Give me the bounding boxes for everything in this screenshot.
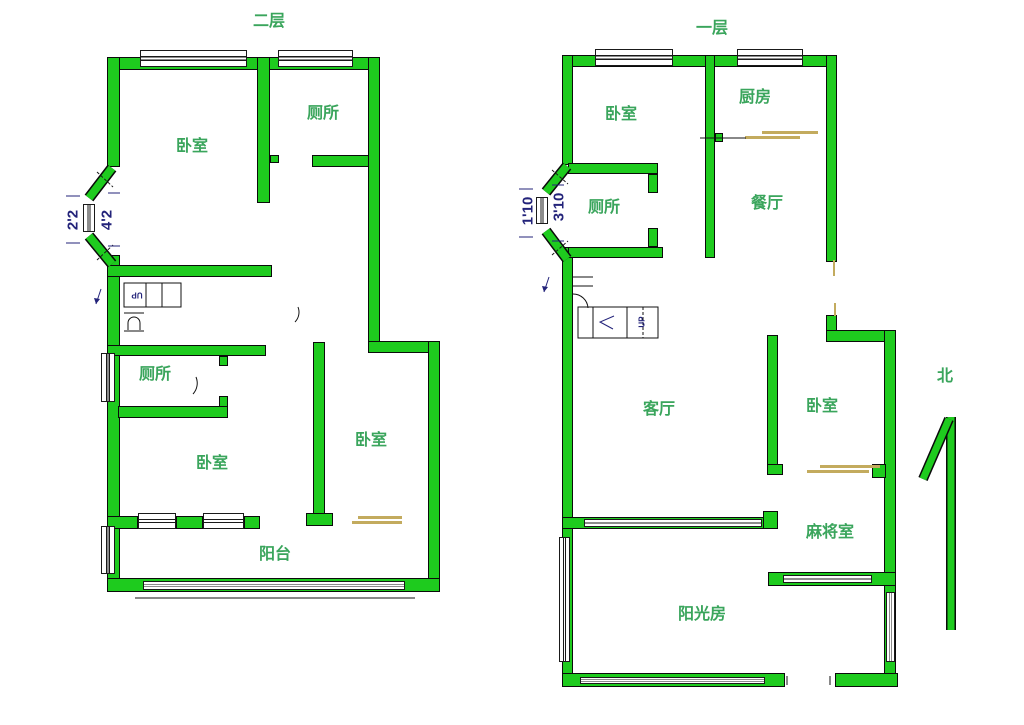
- room-label-bedroom-top-right: 卧室: [605, 100, 637, 124]
- plan-title-second-floor: 二层: [253, 7, 285, 31]
- room-label-kitchen: 厨房: [739, 83, 771, 107]
- dimension-label: 4'2: [99, 210, 116, 230]
- plan-title-first-floor: 一层: [696, 14, 728, 38]
- room-label-sunroom: 阳光房: [678, 600, 726, 624]
- room-label-dining: 餐厅: [751, 189, 783, 213]
- door-swing: [193, 377, 197, 394]
- stairs-up-label-right: UP: [638, 316, 647, 327]
- dimension-label: 3'10: [551, 193, 568, 222]
- dimension-ticks: [66, 185, 564, 246]
- room-label-mahjong: 麻将室: [806, 518, 854, 542]
- room-label-bedroom-mid-left: 卧室: [196, 449, 228, 473]
- door-swing: [295, 307, 299, 322]
- stairs-right: [542, 277, 658, 338]
- room-label-bedroom-right-right: 卧室: [806, 392, 838, 416]
- sunroom-door-gap-ticks: [787, 676, 830, 685]
- compass-north-label: 北: [937, 362, 953, 386]
- room-label-toilet-right: 厕所: [588, 193, 620, 217]
- stairs-up-label-left: UP: [131, 291, 142, 300]
- room-label-bedroom-top-left: 卧室: [176, 132, 208, 156]
- dimension-label: 1'10: [520, 197, 537, 226]
- room-label-living: 客厅: [643, 395, 675, 419]
- north-arrow: [923, 417, 951, 630]
- room-label-toilet-top-left: 厕所: [307, 99, 339, 123]
- room-label-bedroom-right-left: 卧室: [355, 426, 387, 450]
- dimension-label: 2'2: [65, 210, 82, 230]
- room-label-toilet-mid-left: 厕所: [139, 360, 171, 384]
- floor-plan-canvas: 二层 一层 卧室 厕所 厕所 卧室 卧室 阳台 2'2 4'2 UP 卧室 厨房…: [0, 0, 1024, 725]
- room-label-balcony: 阳台: [259, 540, 291, 564]
